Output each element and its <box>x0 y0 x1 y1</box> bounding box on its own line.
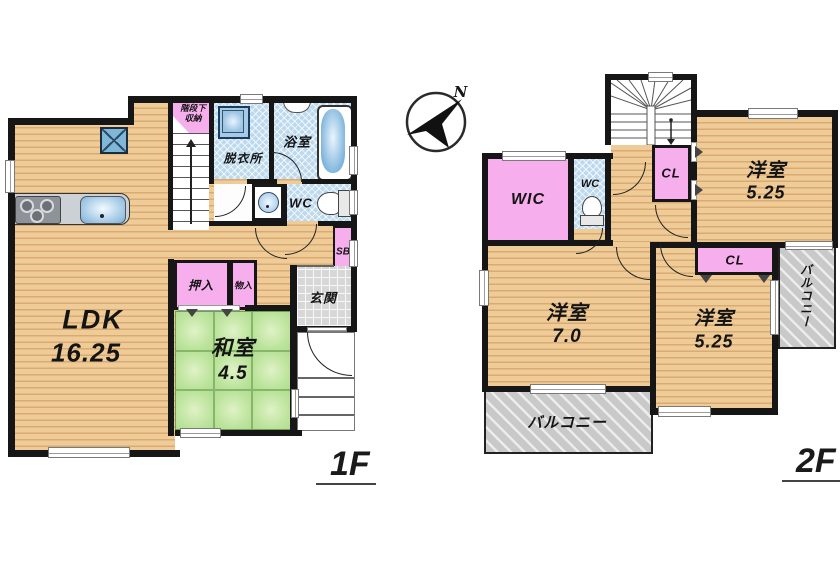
cutout <box>0 0 128 118</box>
wall <box>8 118 134 125</box>
window <box>180 428 221 438</box>
window <box>5 160 15 193</box>
yoshitsu-sw-label: 洋室 <box>546 297 588 326</box>
sliding-door-marker <box>758 275 770 283</box>
cl-south-label: CL <box>725 253 744 268</box>
window <box>770 280 779 335</box>
wall <box>568 159 574 246</box>
wall <box>650 242 656 415</box>
porch-step <box>298 377 354 379</box>
window <box>479 270 489 306</box>
bathtub-water <box>321 109 345 173</box>
vanity-basin-icon <box>258 192 279 213</box>
wall <box>605 153 611 246</box>
window <box>349 190 358 215</box>
porch-step <box>298 414 354 416</box>
window <box>307 327 347 332</box>
window <box>349 240 358 267</box>
sliding-door-marker <box>695 146 703 158</box>
yoshitsu-sw-area: 7.0 <box>552 326 581 348</box>
washer-icon-inner <box>222 110 244 133</box>
genkan-label: 玄関 <box>309 288 337 307</box>
oshiire-label: 押入 <box>188 277 214 294</box>
ldk-label: LDK <box>62 305 124 336</box>
porch-step <box>298 396 354 398</box>
window <box>291 389 299 418</box>
window <box>658 406 711 417</box>
floor-label-2f: 2F <box>782 444 840 482</box>
window <box>349 146 358 175</box>
monoire-label: 物入 <box>234 279 252 292</box>
window <box>748 108 798 119</box>
sliding-door-marker <box>695 184 703 196</box>
sliding-door-marker <box>221 309 233 317</box>
window <box>785 241 833 250</box>
window <box>502 151 566 161</box>
sb-label: SB <box>336 247 350 258</box>
bath-label: 浴室 <box>283 132 311 151</box>
stairs-2f <box>611 80 691 145</box>
toilet-tank-2f <box>580 215 604 226</box>
wc-1f-label: WC <box>289 196 313 211</box>
yoshitsu-se-area: 5.25 <box>694 332 733 353</box>
window <box>530 384 606 394</box>
stairs-arrow <box>190 146 192 224</box>
wall <box>209 221 285 226</box>
wall <box>168 96 173 230</box>
wall <box>245 305 296 311</box>
stairs-arrow-head <box>186 139 196 147</box>
yoshitsu-se-label: 洋室 <box>694 304 734 331</box>
wall <box>832 110 838 248</box>
wall <box>168 259 174 436</box>
wall <box>605 74 611 145</box>
sliding-door-marker <box>186 309 198 317</box>
genkan-threshold <box>297 265 334 267</box>
window <box>648 72 673 82</box>
balcony-east-label: バルコニー <box>798 264 815 329</box>
floor-plan-canvas: 階段下収納 脱衣所 浴室 WC SB 玄関 <box>0 0 840 568</box>
vanity-drain <box>266 205 269 208</box>
floor-label-1f: 1F <box>316 447 376 485</box>
wall <box>282 184 287 226</box>
understairs-label: 階段下収納 <box>179 103 207 123</box>
washitsu-area: 4.5 <box>218 363 247 385</box>
cl-north-label: CL <box>661 166 680 181</box>
wc-2f-label: WC <box>581 178 599 190</box>
sink-icon <box>80 196 126 224</box>
yoshitsu-ne-area: 5.25 <box>746 183 785 204</box>
range-hood-icon <box>100 127 128 154</box>
sliding-door-marker <box>700 275 712 283</box>
balcony-south-label: バルコニー <box>527 412 607 433</box>
ldk-area: 16.25 <box>51 338 121 369</box>
window <box>240 94 263 104</box>
washitsu-label: 和室 <box>211 332 255 362</box>
wall <box>128 96 134 125</box>
burner <box>30 209 44 223</box>
sink-drain <box>100 214 104 218</box>
dressing-label: 脱衣所 <box>223 150 262 167</box>
wall <box>302 179 357 184</box>
wic-label: WIC <box>511 191 545 209</box>
yoshitsu-ne-label: 洋室 <box>746 156 786 183</box>
cutout <box>175 436 302 468</box>
wall <box>318 221 357 226</box>
window <box>48 447 130 458</box>
wall <box>209 96 214 184</box>
compass-north-label: N <box>454 83 469 101</box>
